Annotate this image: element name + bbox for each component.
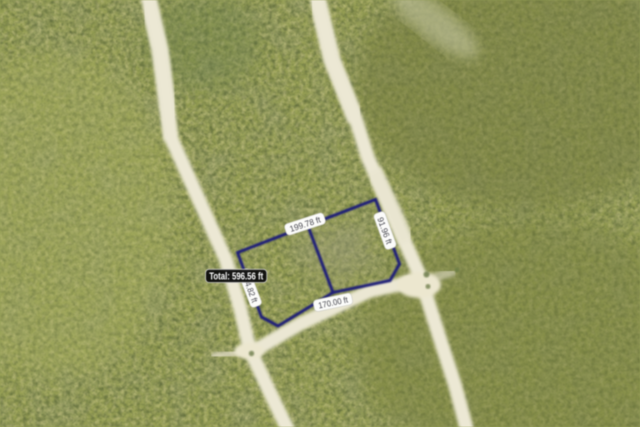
svg-text:Total: 596.56 ft: Total: 596.56 ft — [209, 271, 264, 282]
